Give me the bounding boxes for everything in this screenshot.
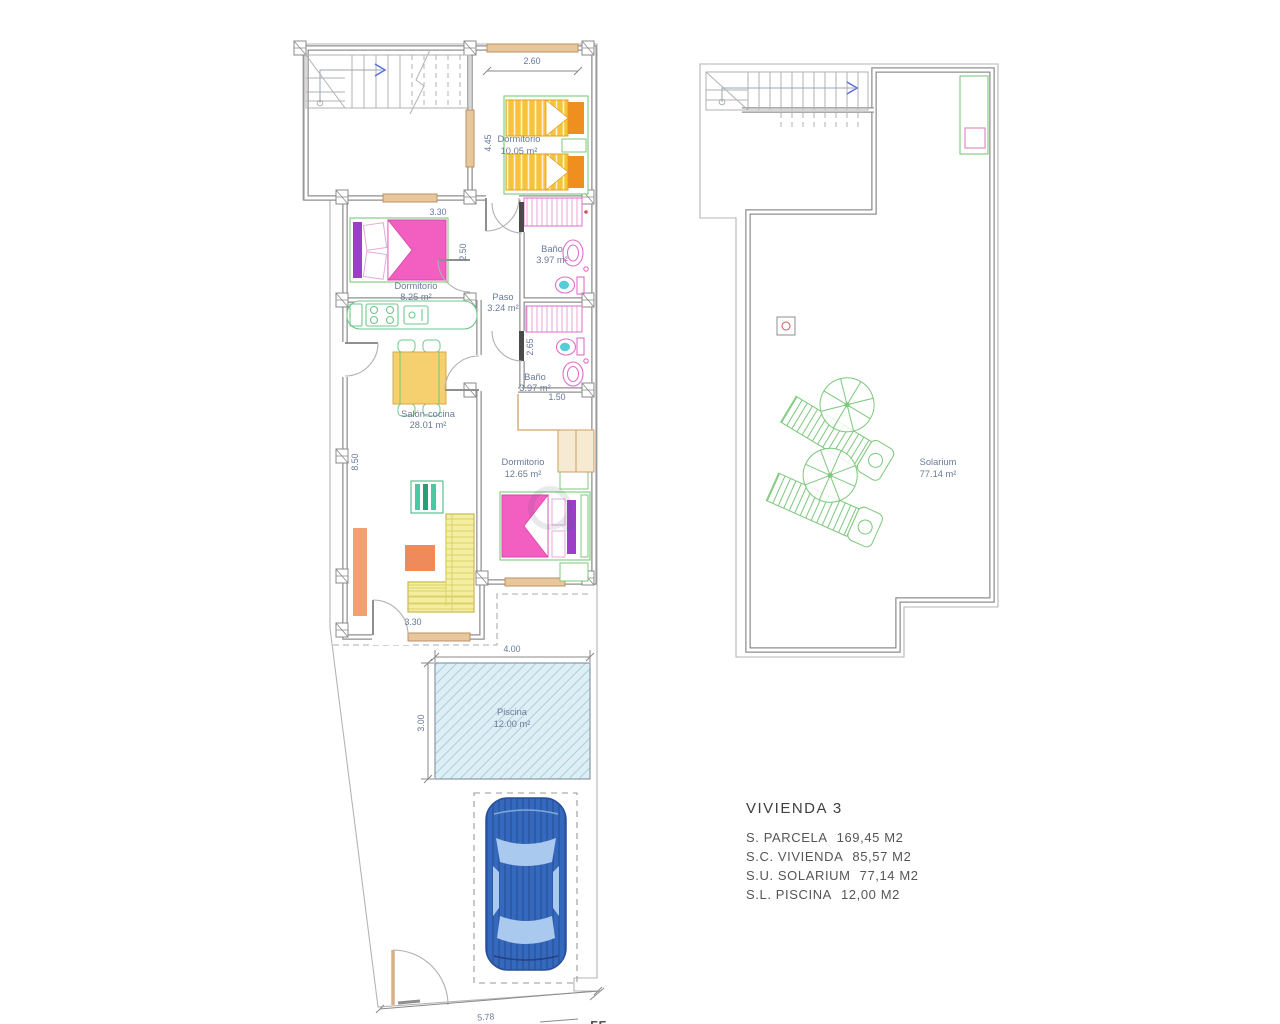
- wardrobe-symbol: [558, 430, 594, 472]
- room-label-salon: Salón-cocina: [401, 409, 456, 419]
- floor-plan-drawing: Dormitorio 10.05 m² Dormitorio 8.25 m² B…: [0, 0, 1280, 1024]
- room-area-bano-2: 3.97 m²: [519, 383, 551, 393]
- door-gap: [338, 342, 352, 377]
- legend-item-value: 169,45 M2: [837, 830, 904, 845]
- window-symbol: [383, 194, 437, 202]
- legend-item-label: S.C. VIVIENDA: [746, 849, 843, 864]
- room-area-salon: 28.01 m²: [410, 420, 447, 430]
- legend-item-label: S. PARCELA: [746, 830, 828, 845]
- legend-item-value: 12,00 M2: [841, 887, 900, 902]
- dim-8-50: 8.50: [350, 453, 360, 470]
- room-area-dormitorio-2: 8.25 m²: [400, 292, 432, 302]
- legend-item: S.L. PISCINA12,00 M2: [746, 887, 900, 902]
- legend-item-label: S.L. PISCINA: [746, 887, 832, 902]
- dim-3-30-b: 3.30: [404, 617, 421, 627]
- shower-symbol: [524, 198, 582, 226]
- window-symbol: [466, 110, 474, 167]
- room-area-solarium: 77.14 m²: [920, 469, 957, 479]
- legend-item-value: 85,57 M2: [852, 849, 911, 864]
- headboard: [581, 495, 588, 557]
- nightstand: [562, 139, 586, 152]
- window-symbol: [487, 44, 578, 52]
- floor-plan-page: Dormitorio 10.05 m² Dormitorio 8.25 m² B…: [0, 0, 1280, 1024]
- car-symbol: [486, 798, 566, 970]
- door-leaf: [519, 202, 524, 232]
- headboard: [353, 222, 362, 278]
- legend-item: S.U. SOLARIUM77,14 M2: [746, 868, 919, 883]
- room-area-dormitorio-3: 12.65 m²: [505, 469, 542, 479]
- tv-unit-symbol: [411, 481, 443, 513]
- boundary-tick: [590, 988, 604, 1000]
- window-symbol: [505, 578, 565, 586]
- dim-4-00: 4.00: [503, 644, 520, 654]
- solarium-plan: Solarium 77.14 m²: [700, 64, 998, 657]
- dim-4-45: 4.45: [483, 134, 493, 151]
- dim-3-00: 3.00: [416, 714, 426, 731]
- room-label-dormitorio-2: Dormitorio: [395, 281, 438, 291]
- door-leaf: [519, 331, 524, 361]
- room-label-piscina: Piscina: [497, 707, 528, 717]
- pillow: [363, 252, 386, 280]
- legend-item-label: S.U. SOLARIUM: [746, 868, 851, 883]
- solarium-walls: [748, 70, 992, 650]
- room-area-dormitorio-1: 10.05 m²: [501, 146, 538, 156]
- room-label-bano-1: Baño: [541, 244, 563, 254]
- pillow: [568, 102, 584, 134]
- nightstand: [560, 471, 588, 489]
- dim-1-50: 1.50: [548, 392, 565, 402]
- dim-partial-bottom: 55: [590, 1018, 607, 1024]
- legend-title: VIVIENDA 3: [746, 800, 843, 817]
- room-area-piscina: 12.00 m²: [494, 719, 531, 729]
- sideboard-symbol: [353, 528, 367, 616]
- dim-3-30-a: 3.30: [429, 207, 446, 217]
- pillow: [363, 223, 386, 251]
- dim-2-60: 2.60: [523, 56, 540, 66]
- room-label-paso: Paso: [492, 292, 513, 302]
- drain-symbol: [777, 317, 795, 335]
- legend: VIVIENDA 3 S. PARCELA169,45 M2 S.C. VIVI…: [746, 800, 919, 902]
- nightstand: [560, 563, 588, 581]
- door-gap: [372, 629, 409, 645]
- double-bed-symbol: [350, 218, 448, 282]
- room-label-bano-2: Baño: [524, 372, 546, 382]
- pillow: [552, 531, 565, 557]
- dim-2-50: 2.50: [458, 243, 468, 260]
- gate-door: [393, 950, 448, 1005]
- legend-item: S. PARCELA169,45 M2: [746, 830, 903, 845]
- twin-beds-symbol: [504, 96, 588, 194]
- room-area-paso: 3.24 m²: [487, 303, 519, 313]
- pillow: [568, 156, 584, 188]
- room-label-solarium: Solarium: [920, 457, 957, 467]
- coffee-table-symbol: [405, 545, 435, 571]
- dim-2-65: 2.65: [525, 338, 535, 355]
- dim-5-78: 5.78: [477, 1011, 495, 1022]
- room-label-dormitorio-3: Dormitorio: [502, 457, 545, 467]
- staircase-solarium: [706, 72, 868, 131]
- legend-item: S.C. VIVIENDA85,57 M2: [746, 849, 911, 864]
- room-label-dormitorio-1: Dormitorio: [498, 134, 541, 144]
- kitchen-counter-symbol: [347, 301, 477, 329]
- window-symbol: [408, 633, 470, 641]
- room-area-bano-1: 3.97 m²: [536, 255, 568, 265]
- shower-symbol: [526, 306, 582, 332]
- ground-floor-plan: Dormitorio 10.05 m² Dormitorio 8.25 m² B…: [294, 41, 607, 1024]
- legend-item-value: 77,14 M2: [860, 868, 919, 883]
